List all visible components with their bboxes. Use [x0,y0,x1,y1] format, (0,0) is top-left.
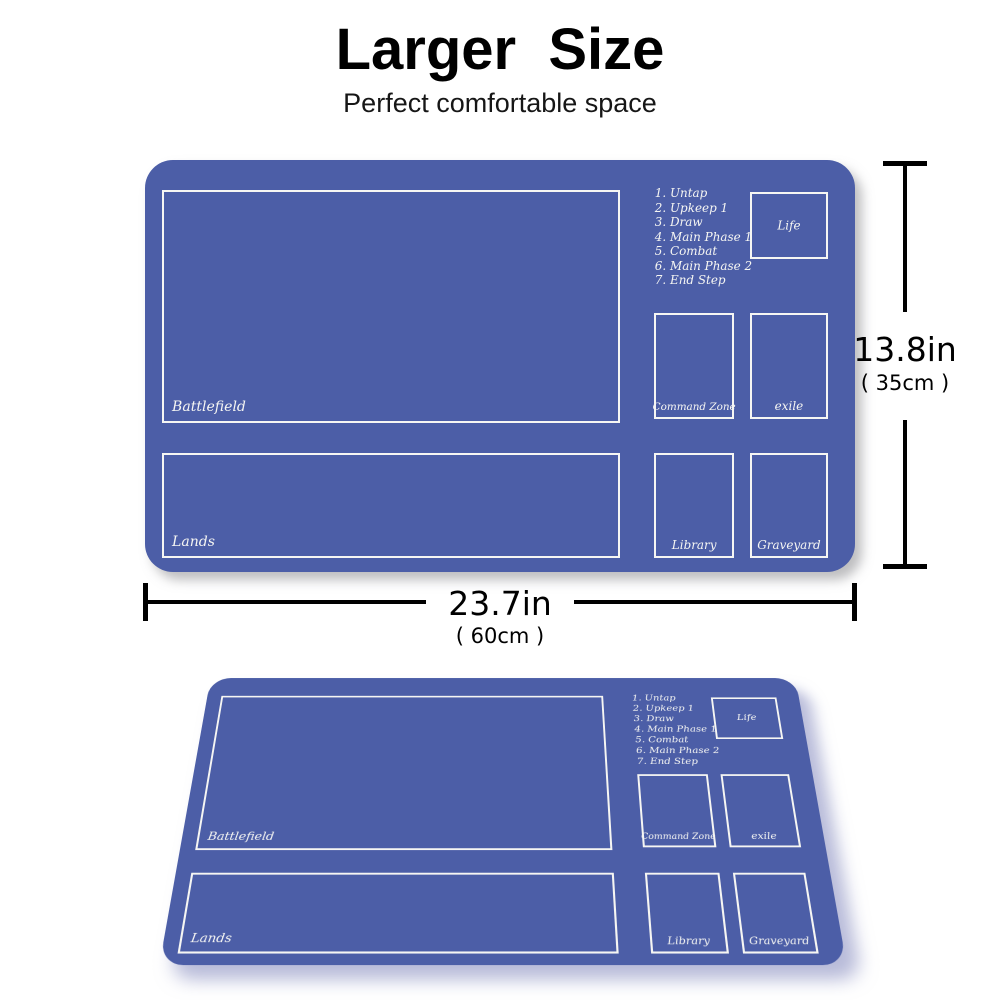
lands-label: Lands [172,534,215,550]
life-label: Life [777,218,800,232]
playmat-perspective-view: Battlefield Lands 1. Untap 2. Upkeep 1 3… [159,678,846,965]
phase-draw: 3. Draw [633,714,716,724]
graveyard-zone: Graveyard [733,872,818,953]
phase-upkeep: 2. Upkeep 1 [655,201,752,216]
life-zone: Life [711,697,783,739]
phase-untap: 1. Untap [655,186,752,201]
turn-phase-list: 1. Untap 2. Upkeep 1 3. Draw 4. Main Pha… [655,186,752,288]
graveyard-label: Graveyard [748,935,810,947]
width-dim-line-left [145,600,426,604]
command-zone: Command Zone [654,313,734,419]
height-dim-line-lower [903,420,907,566]
command-zone: Command Zone [637,774,716,847]
turn-phase-list: 1. Untap 2. Upkeep 1 3. Draw 4. Main Pha… [632,694,722,767]
library-zone: Library [654,453,734,558]
exile-zone: exile [721,774,801,847]
playmat-flat-view: Battlefield Lands 1. Untap 2. Upkeep 1 3… [145,160,855,572]
playmat-top-wrap: Battlefield Lands 1. Untap 2. Upkeep 1 3… [145,160,855,572]
lands-label: Lands [190,930,233,945]
command-zone-label: Command Zone [641,832,717,842]
phase-main-2: 6. Main Phase 2 [655,259,752,274]
playmat-perspective-wrap: Battlefield Lands 1. Untap 2. Upkeep 1 3… [159,678,846,965]
life-zone: Life [750,192,828,259]
library-zone: Library [645,872,729,953]
lands-zone: Lands [162,453,620,558]
phase-main-2: 6. Main Phase 2 [636,745,720,756]
phase-upkeep: 2. Upkeep 1 [632,704,714,714]
phase-main-1: 4. Main Phase 1 [634,724,717,734]
width-inches-label: 23.7in [430,584,570,623]
width-dim-cap-right [852,583,857,621]
battlefield-zone: Battlefield [195,696,612,850]
height-metric-label: ( 35cm ) [840,371,970,395]
phase-main-1: 4. Main Phase 1 [655,230,752,245]
phase-draw: 3. Draw [655,215,752,230]
library-label: Library [672,538,717,552]
page-title: Larger Size [0,16,1000,83]
phase-end-step: 7. End Step [637,756,722,767]
phase-end-step: 7. End Step [655,273,752,288]
command-zone-label: Command Zone [653,401,736,413]
page-subtitle: Perfect comfortable space [0,88,1000,119]
library-label: Library [667,935,711,947]
life-label: Life [736,713,757,723]
graveyard-zone: Graveyard [750,453,828,558]
exile-zone: exile [750,313,828,419]
phase-untap: 1. Untap [632,694,714,704]
width-dim-line-right [574,600,854,604]
battlefield-label: Battlefield [172,399,246,415]
width-metric-label: ( 60cm ) [430,624,570,648]
phase-combat: 5. Combat [635,735,719,746]
exile-label: exile [775,399,804,413]
product-image: Larger Size Perfect comfortable space Ba… [0,0,1000,1000]
height-dim-line-upper [903,161,907,312]
phase-combat: 5. Combat [655,244,752,259]
height-dim-cap-bottom [883,564,927,569]
battlefield-zone: Battlefield [162,190,620,423]
exile-label: exile [750,831,777,842]
lands-zone: Lands [178,872,619,953]
graveyard-label: Graveyard [757,538,820,552]
battlefield-label: Battlefield [207,829,275,843]
height-inches-label: 13.8in [840,330,970,369]
